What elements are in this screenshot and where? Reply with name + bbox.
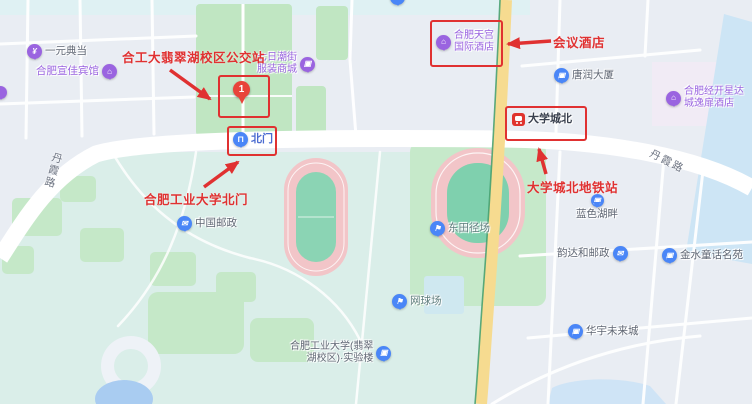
poi-label: 中国邮政 [195,217,237,230]
annotation-text-metro-station: 大学城北地铁站 [527,177,618,196]
building-icon: ▣ [376,346,391,361]
poi-tiangong-hotel[interactable]: ⌂ 合肥天宫 国际酒店 [436,30,494,54]
map-marker-1[interactable]: 1 [233,81,250,98]
poi-label-line2: 国际酒店 [454,42,494,54]
poi-xuanjia-hotel[interactable]: 合肥宣佳宾馆 ⌂ [36,64,117,79]
center-stadium [284,158,348,276]
poi-huayu-future-city[interactable]: ▣ 华宇未来城 [568,324,639,339]
marker-number: 1 [233,81,250,98]
poi-label: 北门 [251,133,273,146]
poi-label: 东田径场 [448,222,490,235]
poi-label: 大学城北 [528,113,572,126]
poi-east-track-field[interactable]: ⚑ 东田径场 [430,221,490,236]
poi-pawnshop[interactable]: ¥ 一元典当 [27,44,87,59]
poi-hfut-lab[interactable]: 合肥工业大学(翡翠 湖校区)·实验楼 ▣ [290,341,391,365]
poi-label-line1: 合肥经开星达 [684,86,744,98]
hotel-icon: ⌂ [436,35,451,50]
poi-label: 华宇未来城 [586,325,639,338]
poi-label-line1: 合肥天宫 [454,30,494,42]
gate-icon: ∏ [233,132,248,147]
poi-label-line2: 湖校区)·实验楼 [307,353,374,365]
poi-label-line1: 合肥工业大学(翡翠 [290,341,373,353]
poi-north-gate[interactable]: ∏ 北门 [233,132,273,147]
poi-tennis-court[interactable]: ⚑ 网球场 [392,294,442,309]
poi-label: 合肥宣佳宾馆 [36,65,99,78]
poi-label: 唐润大厦 [572,69,614,82]
sport-icon: ⚑ [392,294,407,309]
hotel-icon: ⌂ [666,91,681,106]
poi-fashion-mall[interactable]: 七日潮街 服装商城 ▣ [257,52,315,76]
mall-icon: ▣ [300,57,315,72]
hotel-icon: ⌂ [102,64,117,79]
map-canvas[interactable]: 丹霞路 丹霞路 ¥ 一元典当 合肥宣佳宾馆 ⌂ 七日潮街 服装商城 ▣ ⌂ 合肥… [0,0,752,404]
sport-icon: ⚑ [430,221,445,236]
building-icon: ▣ [662,248,677,263]
poi-label: 韵达和邮政 [557,247,610,260]
annotation-text-bus-stop: 合工大翡翠湖校区公交站 [122,47,265,66]
poi-jinshui-garden[interactable]: ▣ 金水童话名苑 [662,248,743,263]
annotation-text-conference-hotel: 会议酒店 [553,32,605,51]
building-icon: ▣ [568,324,583,339]
poi-blue-lakeside[interactable]: ▣ 蓝色湖畔 [576,194,618,221]
mail-icon: ✉ [613,246,628,261]
annotation-text-north-gate: 合肥工业大学北门 [144,189,248,208]
pawnshop-icon: ¥ [27,44,42,59]
poi-china-post[interactable]: ✉ 中国邮政 [177,216,237,231]
poi-label: 一元典当 [45,45,87,58]
poi-label: 网球场 [410,295,442,308]
building-icon: ▣ [554,68,569,83]
poi-label-line2: 城逸扉酒店 [684,98,744,110]
mail-icon: ✉ [177,216,192,231]
poi-label: 金水童话名苑 [680,249,743,262]
poi-metro-station-daxuechengbei[interactable]: 大学城北 [512,113,572,126]
metro-icon [512,113,525,126]
poi-xingdacheng-hotel[interactable]: ⌂ 合肥经开星达 城逸扉酒店 [666,86,744,110]
poi-tangrun-tower[interactable]: ▣ 唐润大厦 [554,68,614,83]
poi-yunda-post[interactable]: 韵达和邮政 ✉ [557,246,628,261]
